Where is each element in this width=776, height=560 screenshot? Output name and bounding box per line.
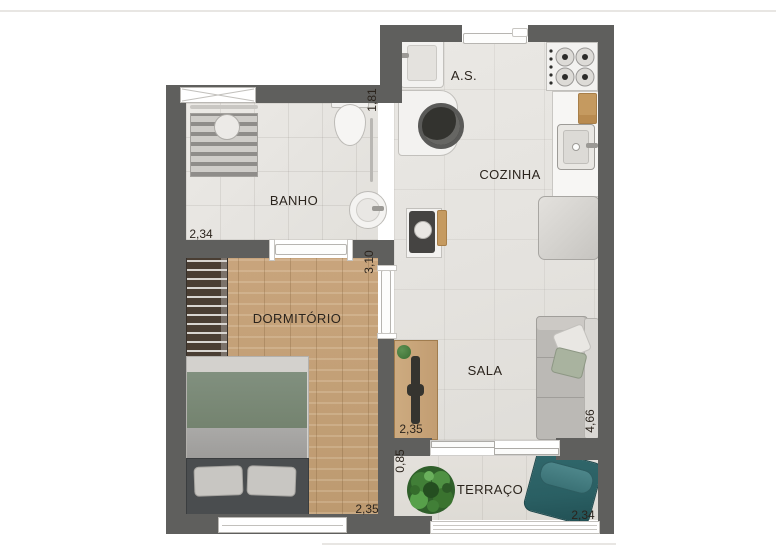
door-jamb [347,239,353,261]
laundry-tank-basin [407,45,437,81]
plate-icon [414,221,432,239]
sala-depth-dim: 4,66 [583,401,597,441]
glass-railing-icon [430,521,600,534]
as-label: A.S. [444,68,484,83]
banho-label: BANHO [254,193,334,208]
dormitorio-width-dim: 2,35 [350,502,384,516]
dormitorio-depth-dim: 3,10 [362,242,376,282]
entry-door-handle [512,28,528,37]
dormitorio-label: DORMITÓRIO [247,311,347,326]
pillow-icon [193,465,243,497]
kitchen-sink-drain [572,143,580,151]
banho-door-icon [275,244,347,255]
sala-label: SALA [462,363,508,378]
chair-cushion [537,459,595,496]
banho-window-icon [180,87,256,103]
tv-stand [407,384,424,396]
dormitorio-window-icon [218,517,347,533]
bed-duvet [187,372,307,428]
wall-sliding-stub-right [556,438,598,460]
banho-width-dim: 2,34 [184,227,218,241]
wall-terrace-bottom-left [378,516,432,534]
sliding-door-icon [431,441,495,448]
sliding-door-icon [494,448,559,455]
washer-drum-icon [418,103,464,149]
door-jamb [269,239,275,261]
terraco-width-dim: 2,34 [566,508,600,522]
wall-right [598,25,614,534]
banho-depth-dim: 1,81 [365,80,379,120]
cozinha-label: COZINHA [468,167,552,182]
sink-faucet-icon [372,206,384,211]
terraco-label: TERRAÇO [452,482,528,497]
wardrobe-icon [186,253,228,360]
fridge-icon [538,196,600,260]
terraco-depth-dim: 0,85 [393,441,407,481]
shower-head-icon [214,114,240,140]
towel-rail-icon [370,118,373,182]
shower-rail-icon [190,105,258,109]
cutting-board-icon [578,93,597,124]
door-jamb [377,333,397,339]
board-icon [437,210,447,246]
floor-plan: BANHO A.S. COZINHA DORMITÓRIO SALA TERRA… [0,0,776,560]
wall-left [166,85,186,534]
potted-plant-icon [403,462,459,518]
page-divider-bottom [322,543,616,545]
page-divider-top [0,10,776,12]
dormitorio-door-icon [381,270,391,334]
rack-plant-icon [397,345,411,359]
stove-icon [546,42,598,91]
bed-sheet [187,428,307,461]
door-jamb [377,265,397,271]
kitchen-faucet-icon [586,143,598,148]
wall-top-a [380,25,462,42]
sala-width-dim: 2,35 [394,422,428,436]
sofa-seam [537,397,585,398]
pillow-icon [246,465,296,497]
